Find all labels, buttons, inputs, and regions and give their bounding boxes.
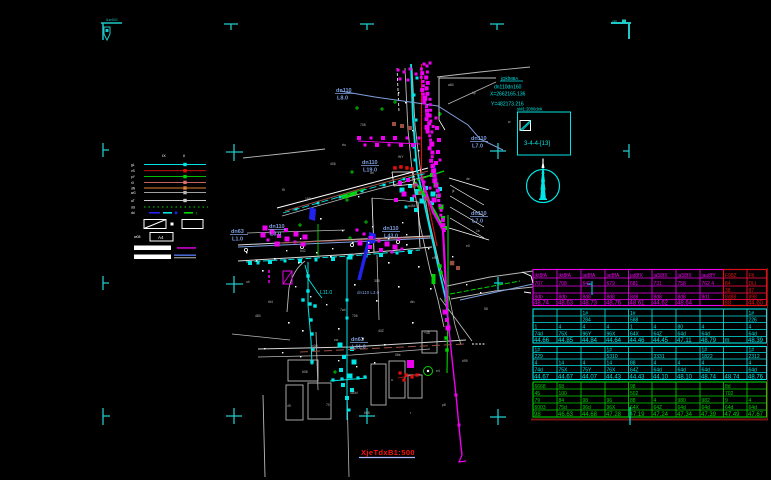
svg-text:642: 642: [300, 249, 306, 253]
svg-text:8db: 8db: [559, 294, 568, 300]
svg-text:48.79: 48.79: [701, 338, 717, 344]
svg-text:58: 58: [484, 307, 488, 311]
svg-text:96X: 96X: [607, 405, 617, 411]
svg-text:4: 4: [535, 360, 538, 366]
svg-text:ja58fX: ja58fX: [653, 273, 669, 279]
svg-text:m: m: [725, 338, 730, 344]
svg-text:L11.0: L11.0: [352, 345, 366, 351]
svg-text:4: 4: [749, 398, 752, 404]
svg-text:68: 68: [559, 384, 565, 390]
svg-text:L7.0: L7.0: [472, 219, 483, 225]
svg-text:44.67: 44.67: [558, 375, 574, 381]
svg-text:48.76: 48.76: [606, 301, 622, 307]
svg-text:46.63: 46.63: [558, 412, 574, 418]
svg-text:406: 406: [330, 162, 336, 166]
svg-text:jau8fY: jau8fY: [701, 273, 717, 279]
svg-text:a84: a84: [448, 83, 454, 87]
svg-text:8d8: 8d8: [678, 294, 687, 300]
svg-text:8d: 8d: [725, 384, 731, 390]
svg-text:dn110 L3.0: dn110 L3.0: [357, 290, 380, 295]
svg-text:48.74: 48.74: [701, 375, 717, 381]
svg-text:706: 706: [352, 314, 358, 318]
svg-text:731: 731: [654, 281, 663, 287]
svg-text:c98: c98: [432, 256, 438, 260]
svg-text:e0: e0: [466, 244, 470, 248]
svg-text:75X: 75X: [559, 367, 569, 373]
svg-text:98: 98: [630, 384, 636, 390]
svg-text:1#: 1#: [607, 347, 613, 353]
svg-text:100: 100: [559, 391, 568, 397]
svg-text:x0d: x0d: [312, 344, 318, 348]
svg-text:64d: 64d: [749, 367, 758, 373]
svg-text:X=2662165.136: X=2662165.136: [490, 92, 526, 98]
svg-text:f5: f5: [282, 188, 285, 192]
svg-text:80: 80: [678, 324, 684, 330]
svg-text:jat8fX: jat8fX: [629, 273, 643, 279]
svg-text:38: 38: [725, 288, 731, 294]
svg-text:a454: a454: [408, 204, 416, 208]
svg-text:DLI: DLI: [749, 281, 757, 287]
svg-text:kp: kp: [472, 91, 476, 95]
svg-text:47.49: 47.49: [725, 412, 741, 418]
svg-text:48.74: 48.74: [534, 301, 550, 307]
svg-text:3331: 3331: [654, 354, 665, 360]
svg-text:608: 608: [364, 411, 370, 415]
svg-text:47.28: 47.28: [606, 412, 622, 418]
svg-text:8d1: 8d1: [702, 294, 711, 300]
svg-text:98: 98: [583, 398, 589, 404]
svg-text:48.63: 48.63: [558, 301, 574, 307]
svg-text:8d8: 8d8: [607, 294, 616, 300]
svg-text:480: 480: [255, 314, 261, 318]
svg-text:4: 4: [702, 324, 705, 330]
svg-text:64d: 64d: [702, 331, 711, 337]
svg-text:e4: e4: [436, 369, 440, 373]
svg-text:ja58fX: ja58fX: [677, 273, 693, 279]
svg-text:6003: 6003: [535, 405, 546, 411]
svg-text:982: 982: [702, 398, 711, 404]
svg-text:707: 707: [535, 281, 544, 287]
svg-text:679: 679: [607, 281, 616, 287]
svg-text:zw: zw: [334, 338, 339, 342]
svg-text:98: 98: [534, 412, 541, 418]
svg-text:64X: 64X: [630, 331, 640, 337]
svg-text:1#: 1#: [630, 311, 636, 317]
svg-text:75d: 75d: [559, 405, 568, 411]
svg-text:8d8: 8d8: [654, 294, 663, 300]
svg-text:r64: r64: [268, 300, 273, 304]
svg-text:uh: uh: [246, 280, 250, 284]
svg-text:FtI: FtI: [749, 273, 755, 279]
svg-text:702: 702: [725, 391, 734, 397]
svg-text:WY: WY: [398, 155, 404, 159]
svg-text:87: 87: [749, 288, 755, 294]
svg-text:64d: 64d: [702, 367, 711, 373]
svg-text:980: 980: [678, 398, 687, 404]
svg-text:502: 502: [630, 391, 639, 397]
svg-text:4: 4: [583, 324, 586, 330]
svg-text:229: 229: [535, 354, 544, 360]
svg-text:70: 70: [326, 403, 330, 407]
svg-text:4: 4: [678, 360, 681, 366]
svg-text:96X: 96X: [607, 331, 617, 337]
svg-text:48.61: 48.61: [630, 301, 646, 307]
svg-text:47.39: 47.39: [701, 412, 717, 418]
svg-text:84: 84: [725, 281, 731, 287]
svg-text:dn110dn160: dn110dn160: [494, 85, 522, 91]
svg-text:79: 79: [535, 398, 541, 404]
svg-text:48.76: 48.76: [748, 375, 764, 381]
svg-text:308: 308: [374, 279, 380, 283]
svg-text:w08: w08: [134, 235, 140, 239]
svg-text:44.60: 44.60: [748, 301, 764, 307]
svg-text:1b: 1b: [476, 229, 480, 233]
svg-text:44.64: 44.64: [606, 338, 622, 344]
svg-text:L11.0: L11.0: [320, 290, 332, 296]
svg-text:47.67: 47.67: [748, 412, 764, 418]
svg-text:8d8: 8d8: [583, 294, 592, 300]
svg-text:64d: 64d: [725, 405, 734, 411]
svg-text:47.19: 47.19: [630, 412, 646, 418]
svg-text:762 4: 762 4: [702, 281, 715, 287]
svg-text:44.84: 44.84: [582, 338, 598, 344]
svg-text:5310: 5310: [607, 354, 618, 360]
svg-text:sM1:2000dxK: sM1:2000dxK: [517, 107, 543, 112]
svg-text:758: 758: [678, 281, 687, 287]
svg-text:88: 88: [630, 360, 636, 366]
svg-text:608: 608: [302, 370, 308, 374]
svg-text:1#: 1#: [749, 311, 755, 317]
svg-text:L3.0: L3.0: [270, 232, 281, 238]
svg-text:64d: 64d: [678, 367, 687, 373]
svg-text:49: 49: [287, 404, 291, 408]
svg-text:44.10: 44.10: [653, 375, 669, 381]
svg-text:u: u: [391, 378, 393, 382]
svg-text:14: 14: [607, 360, 613, 366]
svg-text:84: 84: [559, 398, 565, 404]
svg-text:4: 4: [583, 360, 586, 366]
svg-text:L8.0: L8.0: [337, 96, 348, 102]
svg-text:64X: 64X: [630, 405, 640, 411]
svg-text:dG: dG: [131, 206, 136, 210]
svg-text:47.34: 47.34: [677, 412, 693, 418]
svg-text:48.10: 48.10: [677, 375, 693, 381]
svg-text:74d: 74d: [535, 367, 544, 373]
svg-text:48.73: 48.73: [582, 301, 598, 307]
svg-text:64d: 64d: [702, 405, 711, 411]
svg-text:6668: 6668: [535, 384, 546, 390]
svg-text:1#: 1#: [535, 347, 541, 353]
svg-text:75X: 75X: [559, 331, 569, 337]
svg-text:74d: 74d: [535, 331, 544, 337]
svg-text:2312: 2312: [749, 354, 760, 360]
svg-text:1#: 1#: [749, 347, 755, 353]
svg-text:44.46: 44.46: [630, 338, 646, 344]
svg-text:F98Z: F98Z: [725, 273, 737, 279]
svg-text:64d: 64d: [678, 405, 687, 411]
svg-text:898: 898: [749, 294, 758, 300]
svg-text:44.43: 44.43: [606, 375, 622, 381]
svg-text:vS: vS: [131, 169, 135, 173]
svg-text:8db: 8db: [535, 294, 544, 300]
svg-text:jat8fA: jat8fA: [606, 273, 620, 279]
svg-text:284: 284: [583, 317, 592, 323]
svg-text:4e: 4e: [466, 177, 470, 181]
svg-text:4: 4: [702, 360, 705, 366]
svg-text:L43.0: L43.0: [384, 234, 398, 240]
svg-text:708: 708: [360, 123, 366, 127]
svg-text:1#: 1#: [702, 347, 708, 353]
svg-text:76X: 76X: [607, 367, 617, 373]
svg-text:47.11: 47.11: [677, 338, 692, 344]
svg-text:din: din: [410, 300, 415, 304]
svg-text:44.67: 44.67: [534, 375, 550, 381]
svg-text:4: 4: [654, 324, 657, 330]
svg-text:dd: dd: [131, 211, 135, 215]
svg-text:gL: gL: [131, 163, 135, 167]
svg-text:1#: 1#: [583, 311, 589, 317]
svg-text:jQkfM8A: jQkfM8A: [500, 76, 518, 81]
svg-text:75Y: 75Y: [583, 367, 593, 373]
svg-text:4: 4: [749, 324, 752, 330]
svg-text:dN: dN: [131, 187, 136, 191]
svg-text:1: 1: [535, 324, 538, 330]
svg-text:480d: 480d: [350, 391, 358, 395]
svg-text:681: 681: [630, 281, 639, 287]
svg-text:IX: IX: [162, 153, 166, 158]
svg-text:jkt8fA: jkt8fA: [558, 273, 572, 279]
svg-text:8d88: 8d88: [725, 294, 736, 300]
svg-text:L1.0: L1.0: [232, 237, 243, 243]
svg-text:44.66: 44.66: [534, 338, 550, 344]
svg-text:jkt8fA: jkt8fA: [534, 273, 548, 279]
svg-text:A4: A4: [158, 235, 164, 240]
svg-text:96Y: 96Y: [583, 331, 593, 337]
svg-text:08e: 08e: [395, 353, 401, 357]
svg-text:45: 45: [535, 391, 541, 397]
svg-text:4: 4: [559, 324, 562, 330]
svg-text:44.43: 44.43: [630, 375, 646, 381]
svg-text:96d: 96d: [583, 405, 592, 411]
svg-text:88: 88: [725, 301, 732, 307]
svg-text:47.24: 47.24: [653, 412, 669, 418]
svg-text:wG: wG: [131, 191, 136, 195]
svg-text:64Z: 64Z: [654, 331, 663, 337]
svg-text:4: 4: [607, 324, 610, 330]
svg-text:14: 14: [559, 360, 565, 366]
svg-text:+45: +45: [424, 331, 430, 335]
svg-text:#95: #95: [462, 359, 468, 363]
svg-text:4: 4: [749, 360, 752, 366]
svg-text:44.85: 44.85: [558, 338, 574, 344]
svg-text:dn: dn: [370, 171, 374, 175]
svg-text:8d8: 8d8: [630, 294, 639, 300]
svg-text:iLer04J: iLer04J: [106, 18, 118, 22]
svg-text:96: 96: [607, 398, 613, 404]
svg-text:XjeTdxB1:500: XjeTdxB1:500: [361, 448, 415, 457]
svg-text:9: 9: [725, 398, 728, 404]
svg-text:p8: p8: [442, 403, 446, 407]
svg-text:il: il: [183, 153, 185, 158]
svg-text:7a4: 7a4: [340, 308, 346, 312]
svg-text:44.45: 44.45: [653, 338, 669, 344]
svg-text:jat8fA: jat8fA: [582, 273, 596, 279]
svg-text:1822: 1822: [702, 354, 713, 360]
svg-text:jk: jk: [451, 189, 455, 193]
svg-text:44.07: 44.07: [582, 375, 598, 381]
svg-text:L7.0: L7.0: [472, 144, 483, 150]
svg-text:44.68: 44.68: [582, 412, 598, 418]
svg-text:4: 4: [654, 360, 657, 366]
svg-text:40Z: 40Z: [378, 329, 384, 333]
svg-text:64d: 64d: [749, 405, 758, 411]
svg-text:4: 4: [654, 398, 657, 404]
svg-text:x10: x10: [612, 19, 617, 23]
svg-text:588: 588: [630, 317, 639, 323]
svg-text:64Z: 64Z: [630, 367, 639, 373]
svg-text:44.62: 44.62: [653, 301, 669, 307]
svg-text:48.74: 48.74: [725, 375, 741, 381]
svg-text:708: 708: [559, 281, 568, 287]
svg-text:rtu: rtu: [342, 143, 346, 147]
svg-text:64d: 64d: [678, 331, 687, 337]
svg-text:aT: aT: [131, 199, 135, 203]
svg-text:1: 1: [630, 324, 633, 330]
svg-text:198: 198: [305, 197, 311, 201]
svg-text:48.64: 48.64: [677, 301, 693, 307]
svg-text:64d: 64d: [654, 367, 663, 373]
svg-text:226: 226: [749, 317, 758, 323]
svg-text:64d: 64d: [749, 331, 758, 337]
svg-text:48.39: 48.39: [748, 338, 764, 344]
svg-text:3-4-4-[13]: 3-4-4-[13]: [524, 141, 550, 147]
svg-text:88: 88: [630, 398, 636, 404]
svg-text:64Z: 64Z: [654, 405, 663, 411]
